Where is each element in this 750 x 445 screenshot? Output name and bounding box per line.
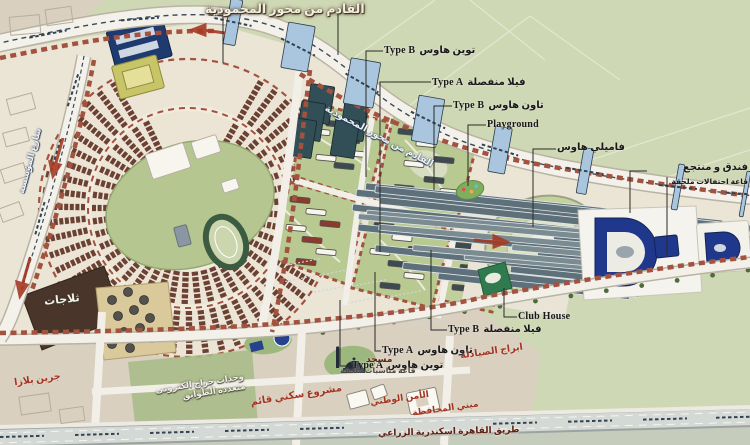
tank-yard <box>96 282 176 360</box>
callout-hotel-sub: قاعة احتفالات ملحقة <box>638 177 748 186</box>
mosque-sublabel: قاعة مناسبات ملحقة <box>340 366 416 375</box>
type-label: Type B <box>448 324 479 335</box>
callout-hotel-resort: فندق و منتجع <box>648 162 748 173</box>
callout-twin-house-b: Type Bتوين هاوس <box>384 45 475 56</box>
arabic-label: توين هاوس <box>419 45 475 56</box>
north-entry-title: القادم من محور المحمودية <box>205 1 365 17</box>
arabic-label: فيلا منفصلة <box>467 77 525 88</box>
callout-family-house: فاميلي هاوس <box>557 142 625 153</box>
callout-town-house-b: Type Bتاون هاوس <box>453 100 544 111</box>
type-label: Type B <box>453 100 484 111</box>
callout-villa-a: Type Aفيلا منفصلة <box>432 77 526 88</box>
type-label: Type A <box>432 77 463 88</box>
callout-villa-b: Type Bفيلا منفصلة <box>448 324 542 335</box>
arabic-label: فيلا منفصلة <box>483 324 541 335</box>
master-plan-screenshot: القادم من محور المحمودية Type Bتوين هاوس… <box>0 0 750 445</box>
site-plan-map <box>0 0 750 445</box>
mosque-label: مسجد <box>366 354 392 365</box>
callout-club-house: Club House <box>518 311 570 322</box>
callout-playground: Playground <box>487 119 539 130</box>
arabic-label: تاون هاوس <box>488 100 543 111</box>
type-label: Type B <box>384 45 415 56</box>
